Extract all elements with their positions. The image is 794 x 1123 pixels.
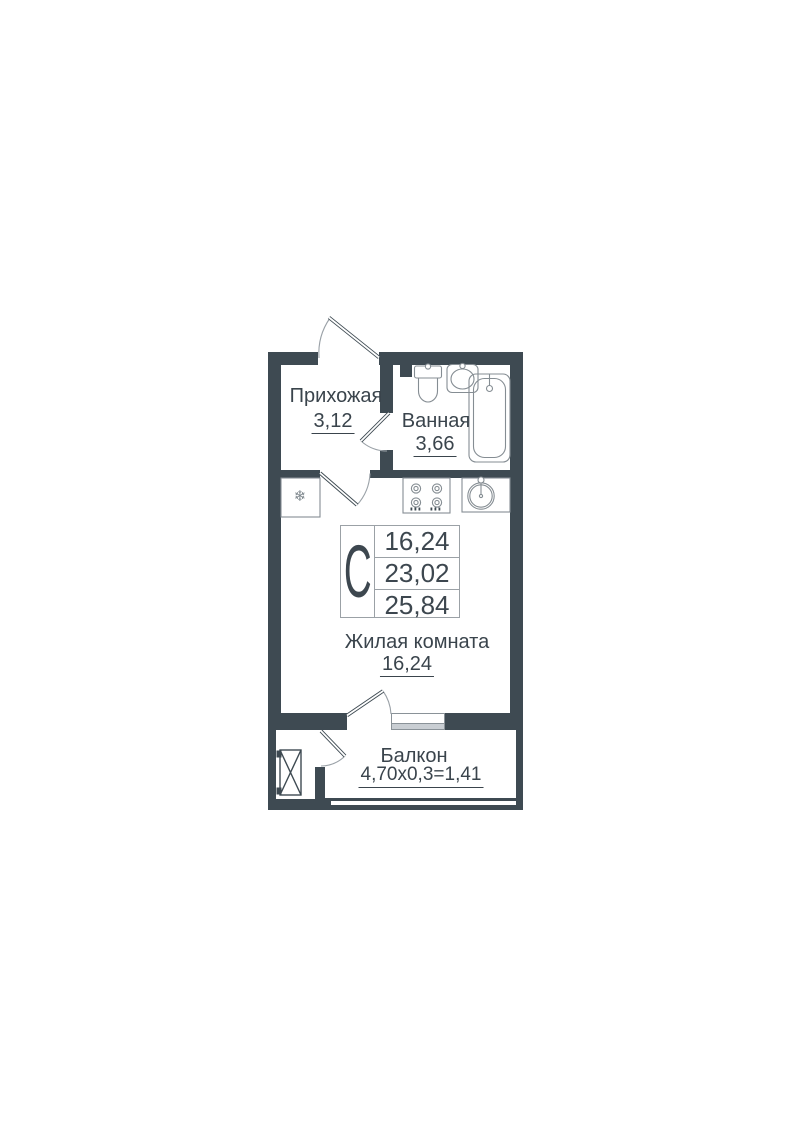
bathroom-door [361, 413, 389, 451]
stats-values: 16,24 23,02 25,84 [375, 526, 459, 617]
hallway-door [320, 473, 370, 505]
kitchen-sink-icon [462, 477, 510, 512]
bathtub-icon [469, 374, 510, 462]
floor-plan-page: ❄ С 16,24 23,02 25,84 Прихожая 3,12 Ванн… [0, 0, 794, 1123]
area-stats-table: С 16,24 23,02 25,84 [340, 525, 460, 618]
balcony-compartment-door [321, 731, 345, 766]
room-label-bathroom: Ванная [402, 410, 471, 432]
balcony-storage-icon [277, 750, 302, 795]
balcony-door [347, 691, 391, 716]
stove-icon [403, 478, 450, 513]
room-area-living: 16,24 [380, 653, 434, 677]
room-area-bathroom: 3,66 [414, 433, 457, 457]
entrance-door [319, 318, 379, 359]
studio-letter: С [344, 529, 372, 614]
room-label-living: Жилая комната [345, 631, 489, 653]
stove-knobs [411, 508, 441, 511]
stats-row-living-area: 16,24 [375, 526, 459, 558]
toilet-icon [415, 364, 442, 402]
stats-row-total-area: 23,02 [375, 558, 459, 590]
studio-letter-cell: С [341, 526, 375, 617]
snowflake-icon: ❄ [294, 489, 307, 504]
room-area-balcony: 4,70х0,3=1,41 [359, 765, 484, 788]
stats-row-full-area: 25,84 [375, 590, 459, 621]
room-area-hallway: 3,12 [312, 410, 355, 434]
room-label-hallway: Прихожая [290, 385, 383, 407]
